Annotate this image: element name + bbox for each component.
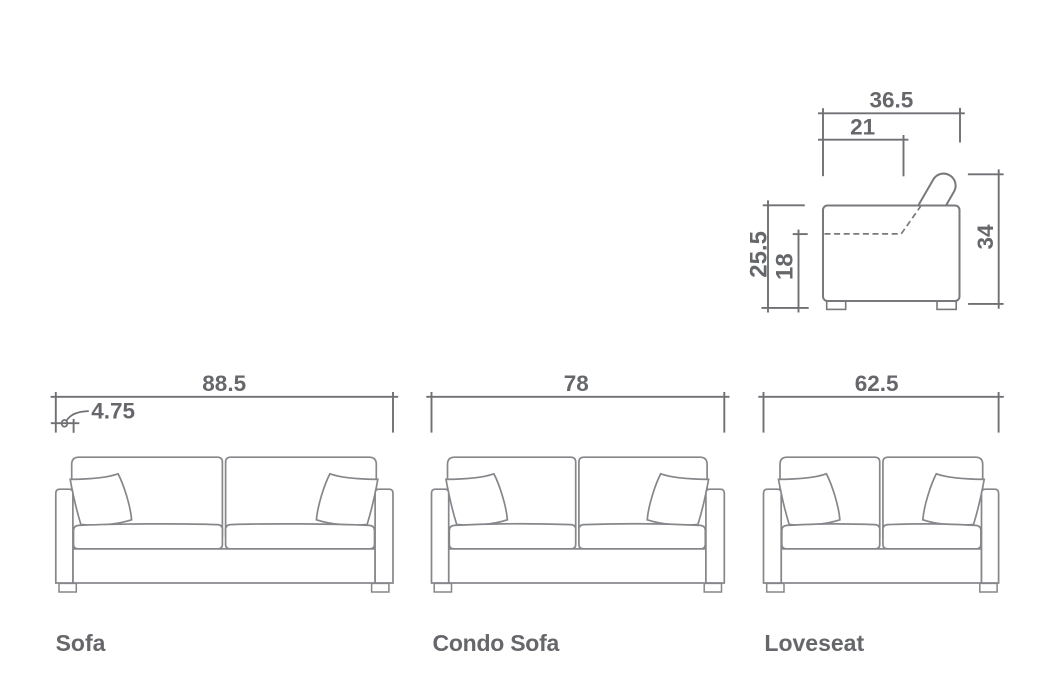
- svg-text:34: 34: [973, 224, 998, 250]
- svg-text:88.5: 88.5: [202, 371, 246, 396]
- svg-text:18: 18: [772, 253, 799, 280]
- svg-text:25.5: 25.5: [745, 231, 772, 278]
- svg-text:21: 21: [850, 115, 875, 140]
- svg-text:Sofa: Sofa: [56, 630, 106, 656]
- svg-text:Condo Sofa: Condo Sofa: [433, 630, 560, 656]
- svg-text:78: 78: [564, 371, 589, 396]
- svg-text:62.5: 62.5: [855, 371, 899, 396]
- svg-text:Loveseat: Loveseat: [764, 630, 864, 656]
- svg-text:36.5: 36.5: [870, 88, 914, 113]
- svg-text:4.75: 4.75: [91, 399, 135, 424]
